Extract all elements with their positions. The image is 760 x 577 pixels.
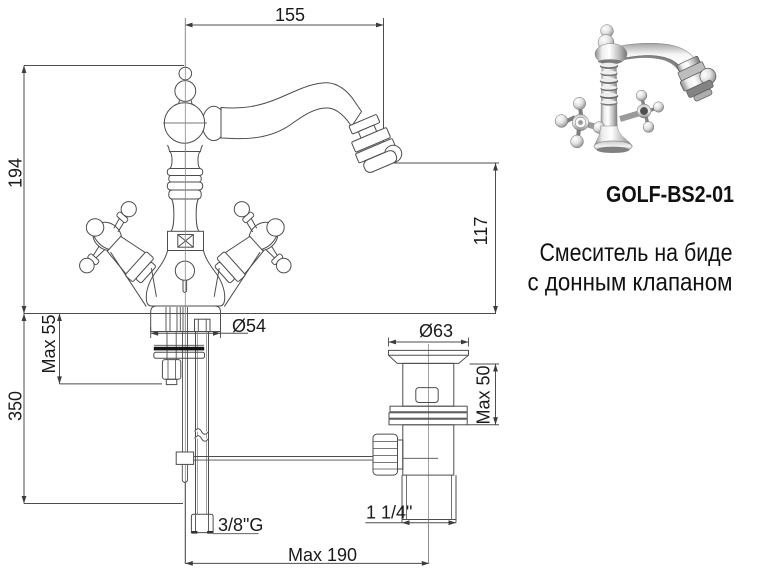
svg-text:Max 55: Max 55 bbox=[39, 314, 59, 373]
svg-text:117: 117 bbox=[471, 217, 491, 246]
svg-text:194: 194 bbox=[6, 158, 26, 188]
svg-text:с донным клапаном: с донным клапаном bbox=[528, 269, 733, 297]
svg-text:3/8"G: 3/8"G bbox=[218, 515, 263, 535]
svg-text:Ø63: Ø63 bbox=[419, 321, 453, 341]
svg-text:Смеситель на биде: Смеситель на биде bbox=[540, 239, 733, 267]
svg-text:Max 50: Max 50 bbox=[474, 365, 494, 424]
svg-text:155: 155 bbox=[275, 5, 305, 25]
svg-text:Max 190: Max 190 bbox=[288, 545, 357, 565]
svg-text:350: 350 bbox=[6, 391, 26, 421]
svg-text:1 1/4": 1 1/4" bbox=[366, 503, 412, 523]
svg-text:GOLF-BS2-01: GOLF-BS2-01 bbox=[606, 181, 734, 207]
svg-text:Ø54: Ø54 bbox=[232, 316, 266, 336]
